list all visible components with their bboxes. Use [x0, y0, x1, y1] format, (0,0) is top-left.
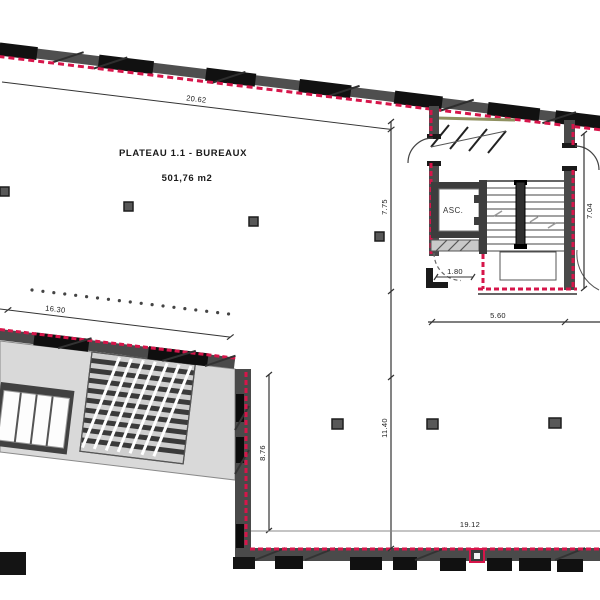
dim-label-door-clearance: 1.80	[447, 267, 463, 276]
core-exit-door: 1.80	[426, 253, 475, 288]
page-title: PLATEAU 1.1 - BUREAUX	[119, 148, 247, 159]
floor-plan-canvas: 20.62 16.30 PLATEAU 1.1 - BUREAUX 501,76…	[0, 0, 600, 600]
door-arc-left	[408, 138, 433, 163]
core: ASC.	[408, 106, 599, 294]
dim-bottom-width: 19.12	[251, 520, 600, 531]
stairs	[479, 180, 564, 280]
elevator-label: ASC.	[443, 206, 463, 215]
door-arc-lower-right	[577, 250, 599, 290]
dim-wing-side: 8.76	[258, 372, 272, 533]
dim-core-right: 7.04	[581, 131, 594, 291]
dim-label-core-height-left: 7.75	[380, 199, 389, 215]
annex-block	[0, 327, 236, 480]
louver-hatch	[80, 352, 195, 464]
wall-fragment	[0, 552, 26, 575]
hatched-wall	[431, 240, 479, 251]
elevator-shaft: ASC.	[431, 182, 479, 238]
door-arc-right	[575, 146, 599, 170]
dim-right-vertical: 7.75 11.40	[380, 119, 394, 551]
top-facade-wall	[0, 42, 600, 130]
dim-core-width: 5.60	[428, 311, 600, 325]
stair-landing	[500, 252, 556, 280]
bottom-facade-wall	[233, 548, 600, 572]
dim-label-lower-right-height: 11.40	[380, 418, 389, 438]
dim-label-core-width: 5.60	[490, 311, 506, 320]
dim-label-top-width: 20.62	[186, 93, 207, 104]
dim-label-bottom-width: 19.12	[460, 520, 480, 529]
awning	[431, 118, 515, 153]
window-assembly	[0, 382, 74, 454]
dim-label-wing-top-width: 16.30	[45, 304, 66, 315]
dim-label-core-height-right: 7.04	[585, 203, 594, 219]
wing-left-wall	[235, 369, 251, 555]
area-label: 501,76 m2	[162, 173, 213, 184]
dim-label-wing-side-height: 8.76	[258, 445, 267, 461]
floor-plan-drawing: 20.62 16.30 PLATEAU 1.1 - BUREAUX 501,76…	[0, 0, 600, 600]
